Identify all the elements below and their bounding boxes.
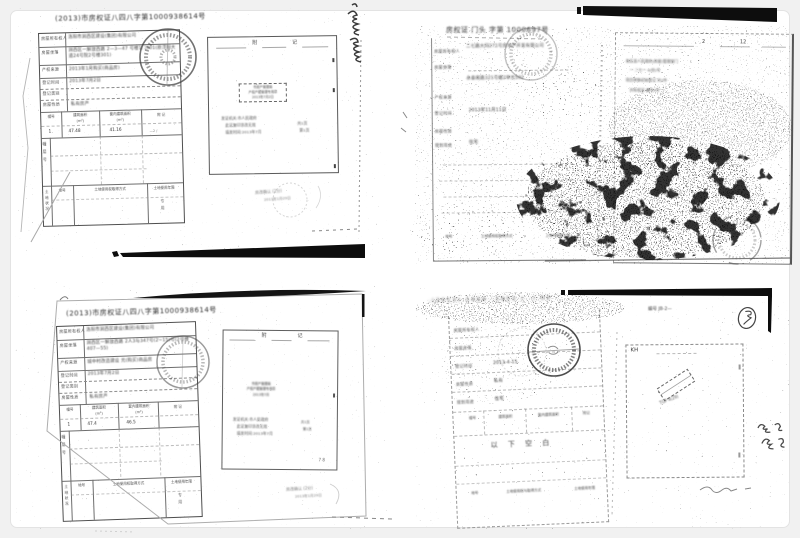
- bottom-cell: 地号: [465, 491, 485, 496]
- form-value: 永泰南路321号楼2单元502: [466, 75, 578, 82]
- annex-label: KH: [630, 347, 638, 353]
- doc4-number: 编号 JB-2—: [648, 306, 672, 312]
- annex-side-note: 第1页: [299, 127, 325, 134]
- land-header: 土地使用权取得方式: [94, 480, 162, 487]
- grid-line: [525, 409, 527, 433]
- table-header: 附 记: [160, 404, 196, 409]
- form-value: 2013-4-15: [493, 358, 553, 366]
- doc4-annex-page: KH TGP 4(29): [625, 343, 744, 478]
- annex-note: 填发时间:2013年7月: [225, 129, 291, 137]
- bottom-cell: 上海市房屋土地: [534, 233, 582, 238]
- scanned-documents-page: (2013)市房权证八四八字第1000938614号 房屋所有权人 房屋坐落 产…: [0, 0, 800, 538]
- ruling-dash: [720, 46, 750, 47]
- form-label: 房屋所有权人: [434, 48, 460, 53]
- table-header: 附 记: [143, 112, 179, 117]
- annex-header: 附: [262, 334, 267, 339]
- ruling-dash: [624, 45, 694, 47]
- edge-tick: [333, 88, 335, 92]
- grid-line: [159, 427, 162, 475]
- land-header: 土地使用年限: [164, 479, 198, 484]
- table-cell: 1: [67, 422, 70, 427]
- annex-note: 填发时间:2013年7月: [237, 431, 301, 438]
- form-label: 登记时间: [61, 372, 78, 378]
- land-header: 地号: [53, 188, 71, 193]
- land-side-label: 土地状况: [44, 190, 50, 224]
- doc3-main-form: 房屋所有权人 房屋坐落 产权来源 登记时间 登记类别 房屋性质 洛阳市涧西区建设…: [56, 321, 203, 522]
- form-value: 城中村改造建设 元(购买)商品房: [87, 356, 191, 365]
- table-cell: 47.4: [87, 421, 96, 426]
- unit-label: (m²): [82, 411, 116, 416]
- form-label: 房屋性质: [43, 101, 60, 106]
- ruling-dash: [468, 69, 568, 71]
- page-number: 12: [740, 39, 746, 45]
- ruling-dash: [230, 340, 256, 341]
- form-label: 房屋坐落: [454, 345, 471, 351]
- grid-line: [451, 349, 601, 357]
- grid-line: [50, 152, 182, 156]
- ruling-dash: [443, 163, 573, 165]
- table-header: 幢号: [43, 114, 59, 119]
- form-value: 私有房产: [71, 101, 131, 108]
- unit-label: (m²): [63, 118, 97, 123]
- form-value: 私有: [494, 377, 534, 385]
- land-header: 土地使用权取得方式: [75, 186, 145, 192]
- annex-side-note: 共1页: [301, 419, 329, 426]
- form-label: 规划用途: [457, 399, 474, 405]
- form-label: 房屋坐落: [41, 49, 58, 54]
- land-header: 地号: [73, 483, 91, 488]
- form-label: 房屋所有权人: [41, 35, 67, 41]
- land-side-label: 土地状况: [64, 485, 70, 517]
- doc2-title: 房权证 门头 字第 1000697号: [446, 25, 596, 35]
- table-header: 套内建筑面积: [101, 111, 139, 116]
- ruling-dash: [216, 47, 246, 48]
- grid-line: [59, 377, 197, 383]
- grid-line: [119, 429, 122, 477]
- unit-label: (m²): [120, 409, 158, 415]
- form-label: 产权来源: [42, 66, 59, 71]
- form-value: 二七路大同271号房地产开发有限公司: [466, 43, 578, 50]
- grid-line: [456, 459, 606, 467]
- edge-tick: [738, 453, 740, 458]
- grid-line: [50, 138, 53, 226]
- form-label: 房屋所有权人: [59, 328, 85, 334]
- land-header: 土地使用年限: [147, 185, 181, 190]
- doc3-annex-page: 附 记 市房产管理局 产权产籍管理专用章 2013年7月 发证机关:市人民政府 …: [221, 329, 338, 470]
- ruling-dash: [308, 340, 330, 341]
- annex-line: 项目转移初始登记 共2件: [626, 77, 740, 85]
- table-cell: 46.5: [126, 419, 135, 424]
- annex-line: 一 二七一 4(份)号: [630, 67, 740, 75]
- form-value: 2013年1月购买(商品房): [69, 64, 175, 73]
- grid-line: [69, 444, 199, 450]
- annex-header: 记: [298, 334, 303, 339]
- form-label: 房屋性质: [61, 394, 78, 400]
- edge-tick: [739, 365, 741, 370]
- form-label: 房屋性质: [435, 128, 452, 133]
- annex-stamp-box: 市房产管理局 产权产籍管理专用章 2013年7月2日: [239, 83, 287, 103]
- table-cell: 41.16: [109, 127, 121, 132]
- ruling-dash: [762, 47, 786, 48]
- form-label: 产权来源: [435, 94, 452, 99]
- grid-line: [51, 168, 147, 172]
- form-label: 登记时间: [42, 79, 59, 84]
- form-label: 房屋坐落: [434, 64, 451, 69]
- form-value: 涧西区一解放西路 2人3与347号(2~15)号(2号楼407—55): [87, 337, 193, 352]
- table-header: 套内建筑面积: [120, 403, 158, 409]
- grid-line: [42, 134, 182, 139]
- table-header: 幢号: [62, 407, 78, 412]
- annex-side-note: 第1页: [303, 426, 331, 433]
- form-value: 2013年7月2日: [69, 77, 149, 85]
- grid-line: [454, 429, 604, 437]
- edge-tick: [334, 164, 336, 168]
- ruling-dash: [656, 353, 696, 354]
- doc1-annex-page: 附 记 市房产管理局 产权产籍管理专用章 2013年7月2日 发证机关:市人民政…: [207, 35, 339, 175]
- bottom-cell: 地号: [438, 234, 460, 238]
- form-label: 房屋所有权人: [454, 327, 480, 333]
- grid-line: [452, 385, 602, 393]
- section-side-label: 幢层号: [62, 435, 69, 479]
- stamp-box-line: 2013年7月: [239, 393, 283, 399]
- ruling-dash: [272, 340, 292, 341]
- form-value: 洛阳市涧西区建设(集团)有限公司: [68, 32, 174, 41]
- table-cell: 1: [49, 129, 52, 134]
- annex-header: 记: [292, 41, 297, 46]
- form-label: 产权来源: [60, 359, 77, 365]
- unit-label: (m²): [101, 117, 139, 122]
- doc2-left-page: 房屋所有权人 二七路大同271号房地产开发有限公司 房屋坐落 永泰南路321号楼…: [431, 37, 586, 261]
- doc2-right-page: 2 12 各区县人民政府(房屋)管理部门 一 二七一 4(份)号 项目转移初始登…: [613, 32, 794, 265]
- ruling-dash: [95, 531, 135, 532]
- form-label: 登记时间: [435, 110, 452, 115]
- form-value: 住宅: [469, 140, 509, 146]
- form-label: 规划用途: [435, 142, 452, 147]
- form-value: 2013年11月11日: [469, 108, 541, 114]
- grid-line: [571, 407, 573, 431]
- form-value: 涧西区一解放西路 2—3—47 号楼1门301(原浮阳大道24号院2号楼301): [68, 45, 176, 59]
- edge-tick: [333, 393, 335, 397]
- form-label: 房屋坐落: [60, 342, 77, 348]
- land-note: 专用: [160, 199, 166, 219]
- edge-tick: [332, 58, 334, 62]
- blank-note: 以 下 空 白: [490, 437, 570, 450]
- annex-line: 各区县人民政府(房屋)管理部门: [626, 57, 740, 66]
- grid-line: [483, 411, 485, 435]
- table-header: 建筑面积: [487, 414, 523, 420]
- annex-header: 附: [252, 41, 257, 46]
- grid-line: [70, 460, 162, 464]
- form-label: 登记类别: [43, 90, 60, 95]
- ruling-dash: [443, 196, 563, 198]
- table-header: 幢号: [461, 416, 483, 421]
- diag-stamp-text: TGP 4(29): [659, 394, 679, 406]
- grid-line: [100, 136, 102, 184]
- form-label: 房屋性质: [456, 381, 473, 387]
- ruling-dash: [302, 46, 328, 47]
- stamp-box-line: 2013年7月2日: [242, 95, 284, 101]
- corner-note: 7 8: [318, 457, 324, 462]
- bottom-cell: 土地使用年限: [565, 485, 605, 491]
- annex-stamp-smudge: 市房产管理局 产权产籍管理专用章 2013年7月: [237, 381, 285, 401]
- page-number: 2: [702, 39, 705, 45]
- land-note: 专用: [178, 493, 184, 513]
- table-header: 建筑面积: [63, 112, 97, 117]
- grid-line: [452, 367, 602, 375]
- section-side-label: 幢层号: [43, 142, 49, 186]
- ruling-dash: [262, 47, 286, 48]
- form-value: 洛阳市涧西区建设(集团)有限公司: [86, 324, 190, 333]
- grid-line: [142, 135, 144, 183]
- table-header: 套内建筑面积: [527, 412, 569, 418]
- table-cell: —2 /: [150, 129, 158, 133]
- doc4-main-form: 房屋所有权人 房屋坐落 登记时间 2013-4-15 房屋性质 私有 规划用途 …: [448, 309, 609, 528]
- bottom-cell: 土地使用权与取得方式: [487, 487, 561, 494]
- grid-line: [456, 477, 606, 485]
- grid-line: [450, 331, 600, 339]
- table-header: 建筑面积: [82, 405, 116, 410]
- ruling-dash: [442, 211, 572, 213]
- grid-line: [40, 85, 180, 90]
- bottom-cell: 土地使用权取得方式: [462, 234, 532, 239]
- form-value: 私有房产: [89, 393, 149, 401]
- form-label: 登记时间: [455, 363, 472, 369]
- form-value: 住宅: [495, 395, 535, 403]
- table-cell: 47.48: [69, 128, 81, 133]
- stamp-box-line: 产权产籍管理专用章: [238, 387, 284, 393]
- table-header: 附记: [573, 410, 599, 415]
- form-label: 登记类别: [61, 383, 78, 389]
- ruling-dash: [439, 179, 574, 181]
- annex-line: 共有权证 编号4号: [629, 87, 739, 95]
- doc1-main-form: 房屋所有权人 房屋坐落 产权来源 登记时间 登记类别 房屋性质 洛阳市涧西区建设…: [38, 29, 185, 227]
